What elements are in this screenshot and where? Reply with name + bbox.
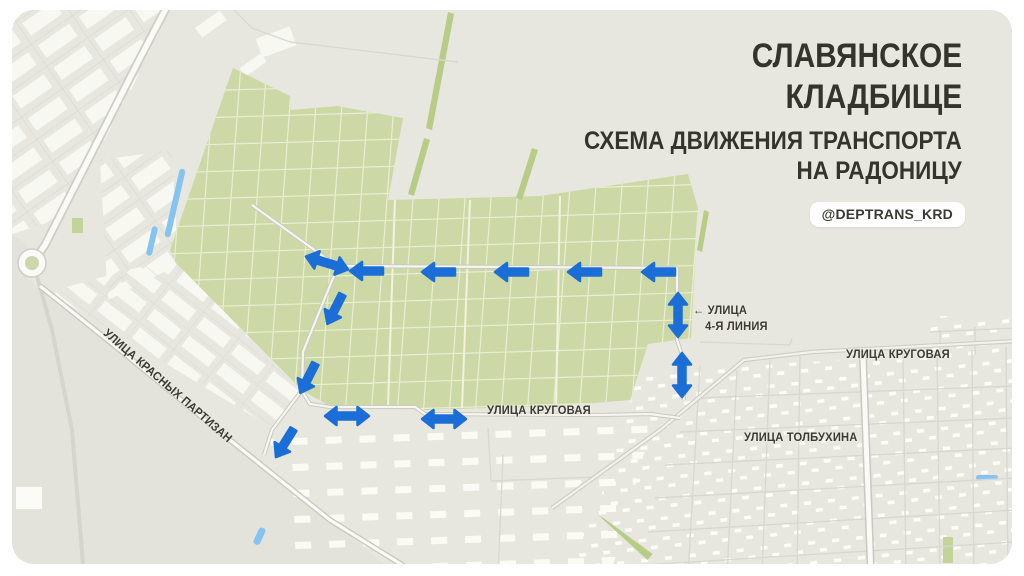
street-label-tolbukhina: УЛИЦА ТОЛБУХИНА: [744, 430, 858, 444]
street-label-4ya-liniya-line1: ← УЛИЦА: [693, 302, 768, 318]
subtitle-line1: СХЕМА ДВИЖЕНИЯ ТРАНСПОРТА: [584, 126, 962, 156]
page-title: СЛАВЯНСКОЕ КЛАДБИЩЕ: [751, 36, 962, 118]
telegram-handle-badge: @DEPTRANS_KRD: [810, 202, 965, 227]
page-subtitle: СХЕМА ДВИЖЕНИЯ ТРАНСПОРТА НА РАДОНИЦУ: [584, 126, 962, 186]
street-label-krugovaya-right: УЛИЦА КРУГОВАЯ: [846, 347, 950, 361]
subtitle-line2: НА РАДОНИЦУ: [584, 156, 962, 186]
street-label-4ya-liniya: ← УЛИЦА 4-Я ЛИНИЯ: [693, 302, 768, 334]
street-label-4ya-liniya-line2: 4-Я ЛИНИЯ: [693, 318, 768, 334]
title-line1: СЛАВЯНСКОЕ: [751, 36, 962, 77]
street-label-krugovaya-center: УЛИЦА КРУГОВАЯ: [487, 403, 591, 417]
infographic-page: УЛИЦА КРАСНЫХ ПАРТИЗАН УЛИЦА КРУГОВАЯ УЛ…: [0, 0, 1024, 576]
title-line2: КЛАДБИЩЕ: [751, 77, 962, 118]
